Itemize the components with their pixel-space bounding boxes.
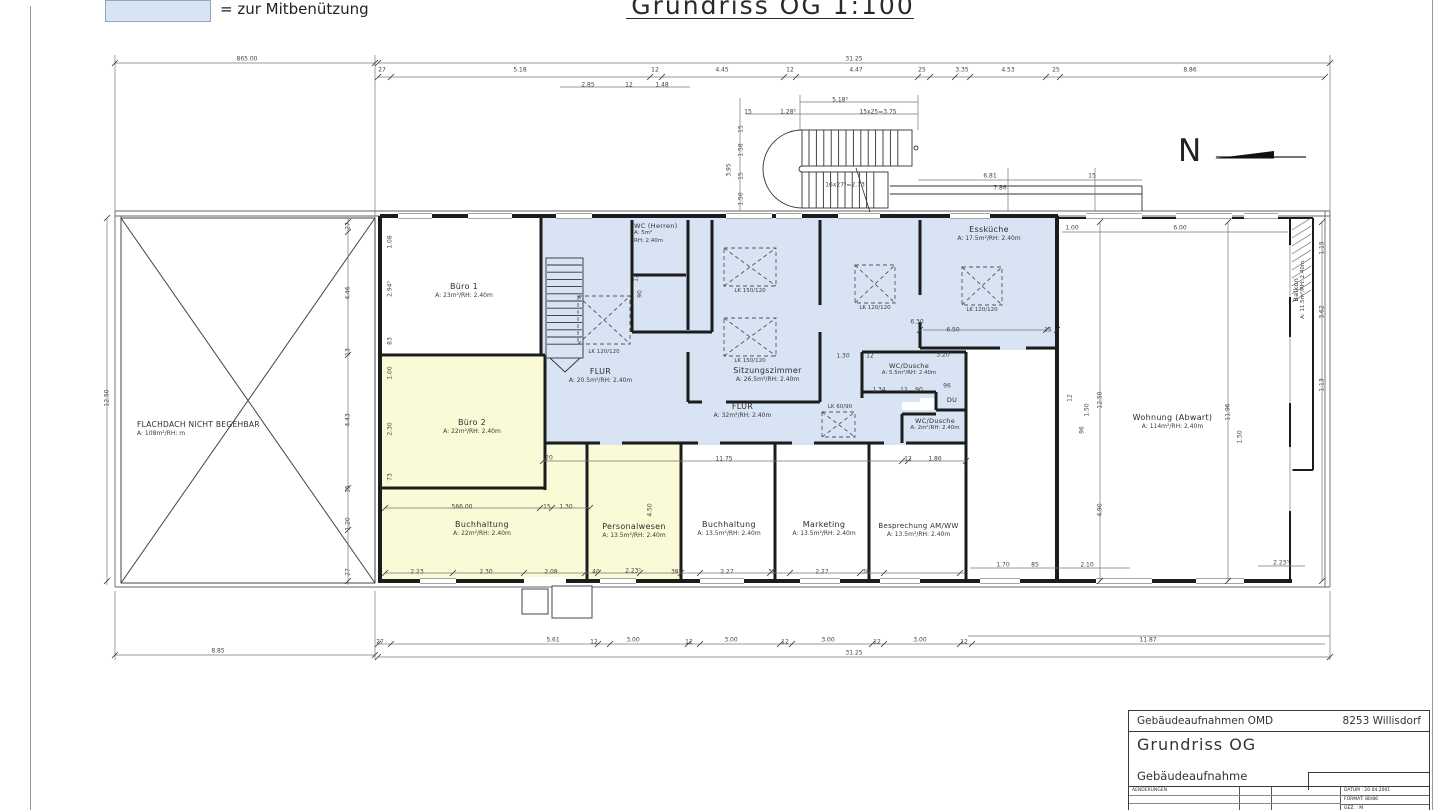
dim-label: 2.10 <box>1080 562 1093 569</box>
room-balkon-label: Balkon A: 11.5m²/RH: 2.40m <box>1292 245 1308 335</box>
dim-label: 12 <box>904 456 912 463</box>
dim-label: 2.85 <box>581 82 594 89</box>
room-personalwesen-label: Personalwesen A: 13.5m²/RH: 2.40m <box>588 522 680 540</box>
room-flur-stairhall-label: FLUR A: 20.5m²/RH: 2.40m <box>548 367 653 385</box>
dim-label: 40 <box>592 569 600 576</box>
dim-label: 12 <box>625 82 633 89</box>
title-block-datum: DATUM : 20.04.2001 <box>1341 787 1429 796</box>
dim-label: 15 <box>738 172 745 180</box>
dim-label: 85 <box>1031 562 1039 569</box>
dim-label: 6.00 <box>1173 225 1186 232</box>
dim-label: 25 <box>1052 67 1060 74</box>
dim-label: 4.53 <box>1001 67 1014 74</box>
title-block-subtitle: Gebäudeaufnahme <box>1137 769 1247 783</box>
dim-label: 2.27 <box>815 569 828 576</box>
dim-label: 12 <box>633 274 640 282</box>
dim-label: 27 <box>345 568 352 576</box>
dim-label: 3.00 <box>724 637 737 644</box>
room-buchhaltung-2-label: Buchhaltung A: 13.5m²/RH: 2.40m <box>684 520 774 538</box>
dim-label: 8.85 <box>211 648 224 655</box>
skylight-label: LK 150/120 <box>734 358 765 364</box>
dim-label: 12 <box>866 353 874 360</box>
dim-label: 12 <box>900 387 908 394</box>
sheet-border-right <box>1432 0 1433 810</box>
room-du-label: DU <box>941 396 963 404</box>
legend-shared-use-label: = zur Mitbenützung <box>220 0 369 18</box>
dim-label: 38 <box>862 569 870 576</box>
dim-label: 1.00 <box>1065 225 1078 232</box>
dim-label: 3.20 <box>936 352 949 359</box>
dim-label: 5.18 <box>513 67 526 74</box>
dim-label: 16x27⁵=2.73 <box>825 182 865 189</box>
dim-label: 2.27 <box>720 569 733 576</box>
dim-label: 73 <box>387 473 394 481</box>
dim-label: 865.00 <box>237 56 258 63</box>
legend-shared-use-swatch <box>105 0 211 22</box>
room-buchhaltung-1-alcove <box>545 445 585 488</box>
room-wohnung-label: Wohnung (Abwart) A: 114m²/RH: 2.40m <box>1105 413 1240 431</box>
room-wc-dusche-1-label: WC/Dusche A: 5.5m²/RH: 2.40m <box>866 362 952 378</box>
dim-label: 2.23⁵ <box>1273 560 1289 567</box>
dim-label: 12 <box>590 639 598 646</box>
dim-label: 5.61 <box>546 637 559 644</box>
dim-label: 12 <box>781 639 789 646</box>
dim-label: 3.00 <box>913 637 926 644</box>
dim-label: 27 <box>378 67 386 74</box>
skylight-label: LK 60/90 <box>828 404 852 410</box>
dim-label: 11.87 <box>1139 637 1156 644</box>
dim-label: 566.00 <box>452 504 473 511</box>
dim-label: 90 <box>637 290 644 298</box>
dim-label: 15 <box>1088 173 1096 180</box>
dim-label: 15 <box>1044 327 1052 334</box>
drawing-sheet: = zur Mitbenützung Grundriss OG 1:100 N <box>0 0 1440 810</box>
dim-label: 31.25 <box>845 650 862 657</box>
room-marketing-label: Marketing A: 13.5m²/RH: 2.40m <box>779 520 869 538</box>
dim-label: 1.15 <box>1319 241 1326 254</box>
room-sitzungszimmer-label: Sitzungszimmer A: 26.5m²/RH: 2.40m <box>705 366 830 384</box>
dim-label: 2.30 <box>387 422 394 435</box>
dim-label: 15 <box>744 109 752 116</box>
dim-label: 15 <box>543 504 551 511</box>
dim-label: 6.50 <box>946 327 959 334</box>
skylight-label: LK 150/120 <box>734 288 765 294</box>
page-title: Grundriss OG 1:100 <box>628 0 918 20</box>
dim-label: 1.34 <box>872 387 885 394</box>
room-besprechung-label: Besprechung AM/WW A: 13.5m²/RH: 2.40m <box>870 522 967 539</box>
dim-label: 12.50 <box>1097 391 1104 408</box>
sheet-border-left <box>30 6 31 810</box>
room-flachdach-label: FLACHDACH NICHT BEGEHBAR A: 108m²/RH: m <box>137 420 302 438</box>
dim-label: 3.00 <box>821 637 834 644</box>
dim-label: 96 <box>1079 426 1086 434</box>
flachdach-cross <box>121 218 375 583</box>
dim-label: 2.30 <box>479 569 492 576</box>
dim-label: 1.08 <box>387 235 394 248</box>
dim-label: 6.81 <box>983 173 996 180</box>
room-buchhaltung-1-label: Buchhaltung A: 22m²/RH: 2.40m <box>418 520 546 538</box>
dim-label: 3.62 <box>1319 305 1326 318</box>
title-block-company: Gebäudeaufnahmen OMD <box>1137 715 1273 727</box>
dim-label: 15 <box>738 125 745 133</box>
dim-label: 12.50 <box>104 389 111 406</box>
exterior-stair <box>763 130 1142 212</box>
dim-label: 12 <box>651 67 659 74</box>
entrance-porch <box>522 586 592 618</box>
dim-label: 83 <box>387 337 394 345</box>
dim-label: 12 <box>873 639 881 646</box>
dim-label: 12 <box>1067 394 1074 402</box>
dim-label: 1.50 <box>738 192 745 205</box>
skylight-label: LK 120/120 <box>859 305 890 311</box>
dim-label: 27 <box>376 639 384 646</box>
dim-label: 90 <box>915 387 923 394</box>
dim-label: 15x25=3.75 <box>859 109 896 116</box>
dim-label: 8.86 <box>1183 67 1196 74</box>
dim-label: 2.08 <box>544 569 557 576</box>
dim-label: 5.18⁵ <box>832 97 848 104</box>
dim-label: 4.50 <box>647 503 654 516</box>
dim-label: 1.86 <box>928 456 941 463</box>
dim-label: 6.30 <box>910 319 923 326</box>
dim-label: 4.90 <box>1097 503 1104 516</box>
dim-label: 27 <box>345 222 352 230</box>
room-wc-herren-label: WC (Herren) A: 5m² RH: 2.40m <box>634 222 704 245</box>
dim-label: 12 <box>685 639 693 646</box>
room-buero-2-label: Büro 2 A: 22m²/RH: 2.40m <box>408 418 536 436</box>
dim-label: 4.43 <box>345 413 352 426</box>
dim-label: 7.86 <box>993 185 1006 192</box>
dim-label: 13 <box>345 348 352 356</box>
dim-label: 1.28⁵ <box>780 109 796 116</box>
dim-label: 1.30 <box>559 504 572 511</box>
room-personalwesen-area <box>587 445 681 581</box>
dim-label: 1.30 <box>836 353 849 360</box>
room-buero-1-label: Büro 1 A: 23m²/RH: 2.40m <box>400 282 528 300</box>
dim-label: 25 <box>918 67 926 74</box>
dim-label: 12 <box>786 67 794 74</box>
dim-label: 11.75 <box>715 456 732 463</box>
dim-label: 4.47 <box>849 67 862 74</box>
dim-label: 1.20 <box>345 517 352 530</box>
dim-label: 1.13 <box>1319 378 1326 391</box>
dim-label: 15 <box>345 485 352 493</box>
dim-label: 1.70 <box>996 562 1009 569</box>
dim-label: 2.23⁵ <box>625 568 641 575</box>
title-block-location: 8253 Willisdorf <box>1343 715 1421 727</box>
dim-label: 2.23 <box>410 569 423 576</box>
dim-label: 12 <box>960 639 968 646</box>
title-underline <box>626 18 914 19</box>
dim-label: 3.00 <box>626 637 639 644</box>
skylight-label: LK 120/120 <box>588 349 619 355</box>
dim-label: 96 <box>943 383 951 390</box>
title-block-table: AENDERUNGEN DATUM : 20.04.2001 FORMAT: 8… <box>1129 786 1429 810</box>
room-flur-corridor-label: FLUR A: 32m²/RH: 2.40m <box>700 402 785 420</box>
dim-label: 38 <box>768 569 776 576</box>
skylight-label: LK 120/120 <box>966 307 997 313</box>
title-block-changes-label: AENDERUNGEN <box>1132 788 1167 793</box>
dim-label: 1.50 <box>1084 403 1091 416</box>
north-label: N <box>1178 133 1201 169</box>
dim-label: 1.58 <box>738 143 745 156</box>
dim-label: 1.00 <box>387 366 394 379</box>
dim-label: 4.45 <box>715 67 728 74</box>
dim-label: 38⁵ <box>671 569 681 576</box>
room-wc-dusche-2-label: WC/Dusche A: 2m²/RH: 2.40m <box>902 417 968 433</box>
dim-label: 2.94⁵ <box>387 281 394 297</box>
dim-label: 3.35 <box>955 67 968 74</box>
title-block-drawing-title: Grundriss OG <box>1129 732 1429 763</box>
dim-label: 1.48 <box>655 82 668 89</box>
dim-label: 3.95 <box>726 163 733 176</box>
dim-label: 31.25 <box>845 56 862 63</box>
north-arrow-icon <box>1214 151 1306 159</box>
title-block-format: FORMAT: 80/86 <box>1341 796 1429 805</box>
title-block: Gebäudeaufnahmen OMD 8253 Willisdorf Gru… <box>1128 710 1430 810</box>
dim-label: 4.46 <box>345 286 352 299</box>
title-block-gez: GEZ. : M <box>1341 805 1429 810</box>
dim-label: 1.50 <box>1237 430 1244 443</box>
dim-label: 20 <box>545 455 553 462</box>
room-esskueche-label: Essküche A: 17.5m²/RH: 2.40m <box>925 225 1053 243</box>
